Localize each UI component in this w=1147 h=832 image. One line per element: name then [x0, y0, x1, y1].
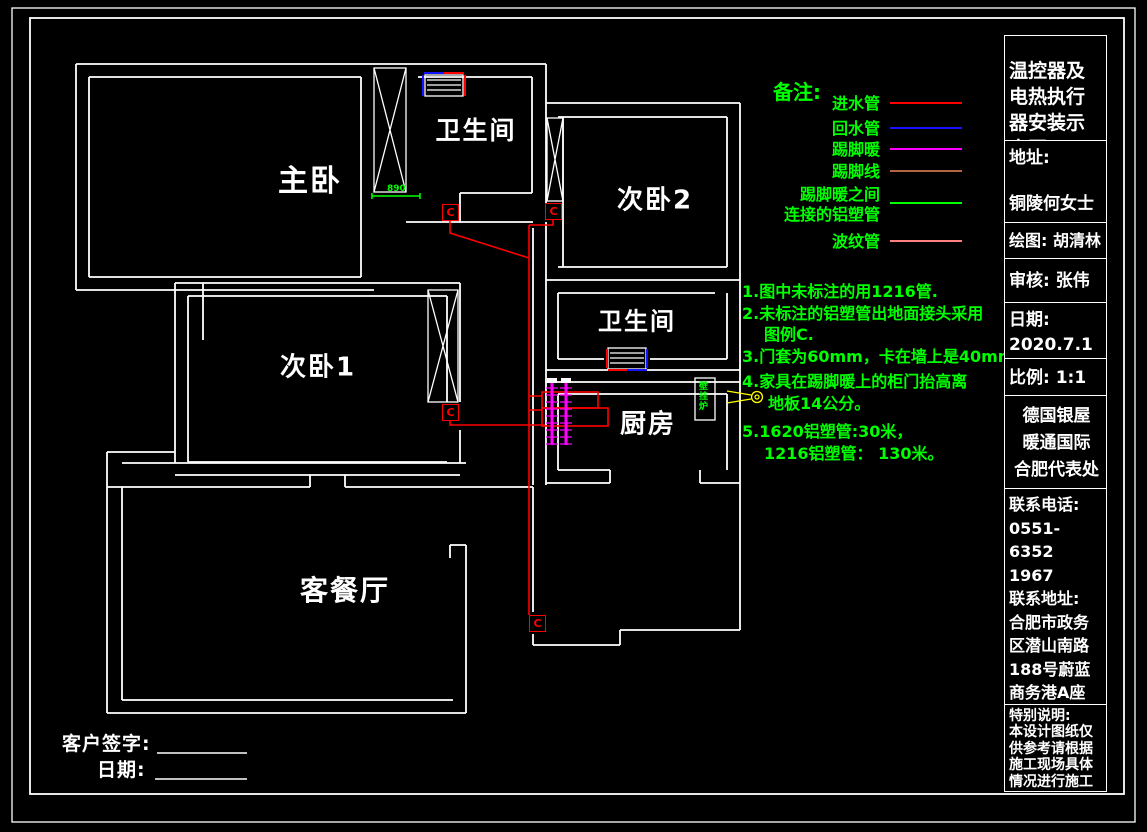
radiator-second-bathroom — [607, 348, 647, 370]
floor-connector-marker: C — [442, 404, 459, 421]
room-label: 主卧 — [278, 156, 342, 200]
floor-connector-marker: C — [442, 204, 459, 221]
dimension-label: 890 — [387, 184, 406, 194]
note-line: 4.家具在踢脚暖上的柜门抬高离 — [742, 368, 967, 392]
customer-signature-label: 客户签字: — [62, 729, 151, 756]
title-block-section: 比例: 1:1 — [1005, 359, 1106, 396]
legend-item-label: 进水管 — [742, 94, 880, 114]
boiler-label: 壁 挂 炉 — [699, 382, 708, 412]
legend-line-sample — [890, 240, 962, 242]
legend-item-label: 踢脚暖 — [742, 140, 880, 160]
note-line: 1216铝塑管： 130米。 — [764, 440, 944, 464]
callout-leader — [727, 391, 763, 403]
note-line: 地板14公分。 — [768, 390, 870, 414]
note-line: 3.门套为60mm，卡在墙上是40mm. — [742, 343, 1021, 367]
date-label: 日期: — [97, 755, 146, 782]
signature-underlines — [155, 753, 247, 779]
title-block: 温控器及 电热执行 器安装示 意图地址: 铜陵何女士绘图: 胡清林审核: 张伟日… — [1004, 35, 1107, 792]
title-block-section: 绘图: 胡清林 — [1005, 223, 1106, 259]
legend-item-label: 踢脚暖之间 连接的铝塑管 — [742, 185, 880, 225]
room-label: 客餐厅 — [300, 569, 390, 609]
legend-line-sample — [890, 102, 962, 104]
title-block-section: 德国银屋 暖通国际 合肥代表处 — [1005, 396, 1106, 489]
title-block-section: 温控器及 电热执行 器安装示 意图 — [1005, 36, 1106, 141]
note-line: 1.图中未标注的用1216管. — [742, 278, 938, 302]
title-block-section: 特别说明: 本设计图纸仅 供参考请根据 施工现场具体 情况进行施工 — [1005, 705, 1106, 791]
title-block-section: 联系电话: 0551-6352 1967 联系地址: 合肥市政务 区潜山南路 1… — [1005, 489, 1106, 705]
legend-line-sample — [890, 170, 962, 172]
note-line: 5.1620铝塑管:30米， — [742, 418, 912, 442]
heating-manifold — [546, 378, 572, 445]
legend-item-label: 回水管 — [742, 119, 880, 139]
cad-drawing-page: 备注: 进水管回水管踢脚暖踢脚线踢脚暖之间 连接的铝塑管波纹管 1.图中未标注的… — [0, 0, 1147, 832]
title-block-section: 日期: 2020.7.1 — [1005, 303, 1106, 359]
room-label: 卫生间 — [435, 111, 516, 147]
legend-item-label: 踢脚线 — [742, 162, 880, 182]
legend-line-sample — [890, 148, 962, 150]
room-label: 厨房 — [620, 404, 676, 441]
title-block-section: 地址: 铜陵何女士 — [1005, 141, 1106, 223]
inner-frame — [30, 18, 1124, 794]
floor-connector-marker: C — [529, 615, 546, 632]
inlet-pipes — [450, 219, 608, 615]
note-line: 图例C. — [764, 321, 814, 345]
floor-connector-marker: C — [545, 203, 562, 220]
legend-item-label: 波纹管 — [742, 232, 880, 252]
room-label: 次卧2 — [617, 180, 693, 217]
room-label: 卫生间 — [598, 302, 676, 337]
room-label: 次卧1 — [280, 347, 356, 384]
walls — [76, 64, 740, 713]
legend-line-sample — [890, 202, 962, 204]
title-block-section: 审核: 张伟 — [1005, 259, 1106, 303]
floorplan-drawing — [0, 0, 1147, 832]
legend-line-sample — [890, 127, 962, 129]
